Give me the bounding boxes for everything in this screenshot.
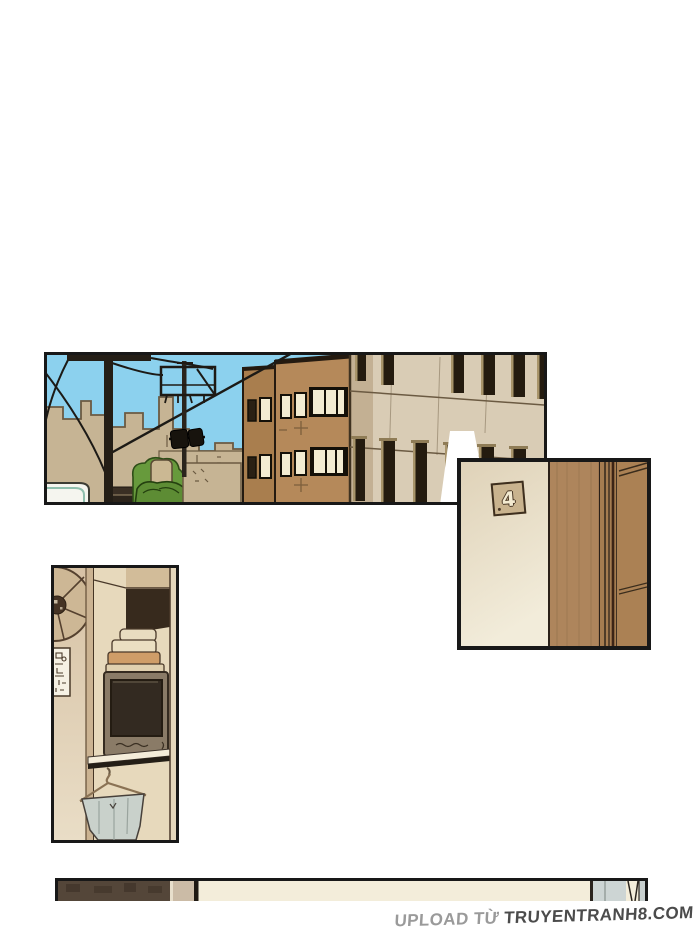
lit-window-upper [309,387,348,417]
interior-art [54,568,176,840]
watermark-site: TRUYENTRANH8.COM [503,903,694,927]
plate-screw [498,508,501,511]
side-wall [617,462,647,646]
main-pole [104,355,113,502]
door-number-plate: 4 [491,481,527,517]
second-pole [182,361,187,477]
panel-interior [51,565,179,843]
right-wall-strip [170,568,176,840]
door-number: 4 [501,488,517,509]
loudspeakers [169,428,205,449]
rooftop-sign [47,483,89,502]
panel-door-number: 4 [457,458,651,650]
watermark-bar: UPLOAD TỪTRUYENTRANH8.COM [0,901,700,938]
frame-edge-lines [600,462,617,646]
comic-page: { "page": { "background": "#ffffff", "ki… [0,0,700,938]
background-wall [183,463,241,502]
door-frame-strip [548,462,600,646]
tv [104,672,168,756]
brown-building [243,355,350,502]
wall-sign [54,648,70,696]
door-art [461,462,647,646]
lit-window-lower [310,447,348,476]
shelf-face [126,568,176,588]
watermark: UPLOAD TỪTRUYENTRANH8.COM [394,903,694,931]
watermark-prefix: UPLOAD TỪ [394,908,500,930]
